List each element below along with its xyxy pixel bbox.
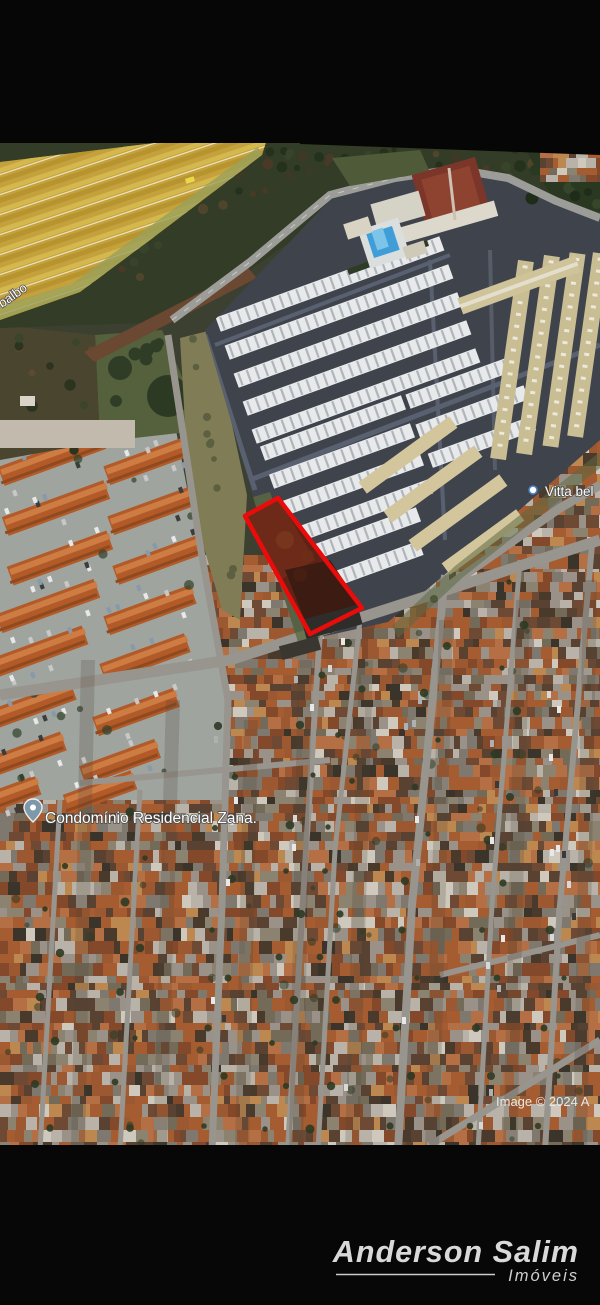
svg-text:Condomínio Residencial Zana.: Condomínio Residencial Zana. [45, 810, 257, 827]
svg-text:Imóveis: Imóveis [508, 1267, 579, 1285]
svg-text:Anderson Salim: Anderson Salim [332, 1235, 579, 1269]
svg-text:Vitta bel: Vitta bel [545, 484, 594, 499]
svg-text:Image © 2024 A: Image © 2024 A [496, 1094, 590, 1109]
